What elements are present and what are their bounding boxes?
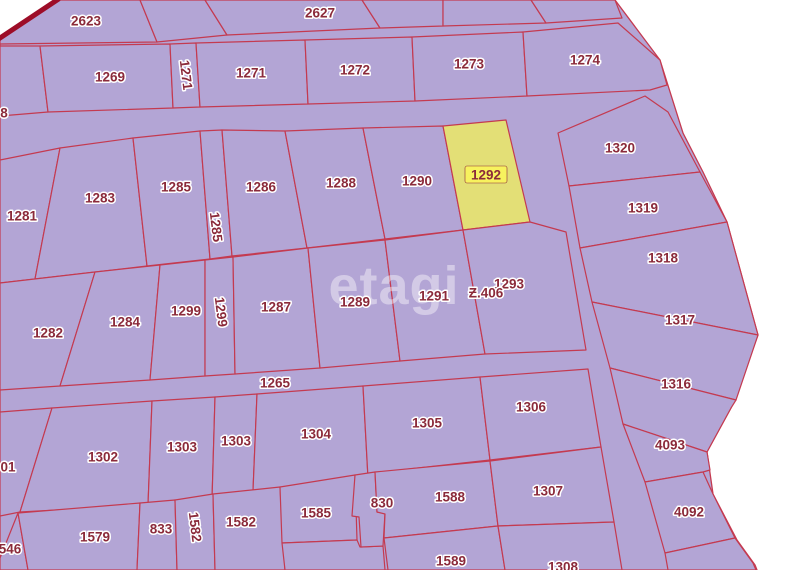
- cadastral-map[interactable]: etagi26232627126912711271127212731274132…: [0, 0, 789, 570]
- parcel-label-1320: 1320: [605, 141, 635, 156]
- cadastral-map-stage: etagi26232627126912711271127212731274132…: [0, 0, 789, 570]
- parcel-label-1287: 1287: [261, 300, 291, 315]
- parcel-label-1319: 1319: [628, 201, 658, 216]
- parcel-wedge-c[interactable]: [443, 0, 546, 26]
- parcel-1285[interactable]: [133, 131, 210, 266]
- parcel-2627[interactable]: [205, 0, 380, 35]
- parcel-label-1273: 1273: [454, 57, 485, 72]
- parcel-label-4092: 4092: [674, 505, 704, 520]
- parcel-label-1307: 1307: [533, 484, 563, 499]
- parcel-label-1288: 1288: [326, 176, 357, 191]
- parcel-label-1283: 1283: [85, 191, 116, 206]
- parcel-label-546: 546: [0, 542, 22, 557]
- parcel-label-1317: 1317: [665, 313, 695, 328]
- parcel-label-Ƶ.406: Ƶ.406: [469, 286, 504, 301]
- parcel-label-1269: 1269: [95, 70, 125, 85]
- parcel-label-1282: 1282: [33, 326, 63, 341]
- parcel-label-2623: 2623: [71, 14, 102, 29]
- parcel-label-1292: 1292: [471, 168, 501, 183]
- parcel-label-1316: 1316: [661, 377, 692, 392]
- parcel-label-1585: 1585: [301, 506, 332, 521]
- parcel-label-1274: 1274: [570, 53, 601, 68]
- parcel-label-1303: 1303: [221, 434, 252, 449]
- parcel-label-1304: 1304: [301, 427, 332, 442]
- parcel-label-1582: 1582: [226, 515, 256, 530]
- parcel-label-1302: 1302: [88, 450, 118, 465]
- parcel-label-1281: 1281: [7, 209, 38, 224]
- parcel-label-1289: 1289: [340, 295, 370, 310]
- parcel-label-1579: 1579: [80, 530, 110, 545]
- parcel-label-8: 8: [0, 106, 8, 121]
- parcel-label-1303: 1303: [167, 440, 198, 455]
- parcel-label-1265: 1265: [260, 376, 291, 391]
- parcel-label-01: 01: [0, 460, 16, 475]
- parcel-label-4093: 4093: [655, 438, 686, 453]
- parcel-label-1286: 1286: [246, 180, 277, 195]
- parcel-label-2627: 2627: [305, 6, 335, 21]
- parcel-label-1306: 1306: [516, 400, 547, 415]
- parcel-label-830: 830: [371, 496, 394, 511]
- parcel-label-1299: 1299: [171, 304, 201, 319]
- parcel-1306[interactable]: [480, 369, 601, 460]
- parcel-label-1305: 1305: [412, 416, 443, 431]
- parcel-label-1284: 1284: [110, 315, 141, 330]
- parcel-label-1308: 1308: [548, 560, 579, 570]
- parcel-label-833: 833: [150, 522, 173, 537]
- parcel-label-1271: 1271: [236, 66, 267, 81]
- parcel-label-1290: 1290: [402, 174, 432, 189]
- parcel-label-1588: 1588: [435, 490, 466, 505]
- parcel-label-1285: 1285: [161, 180, 192, 195]
- parcel-label-1272: 1272: [340, 63, 370, 78]
- parcel-label-1291: 1291: [419, 289, 450, 304]
- parcel-label-1589: 1589: [436, 554, 466, 569]
- parcel-label-1318: 1318: [648, 251, 679, 266]
